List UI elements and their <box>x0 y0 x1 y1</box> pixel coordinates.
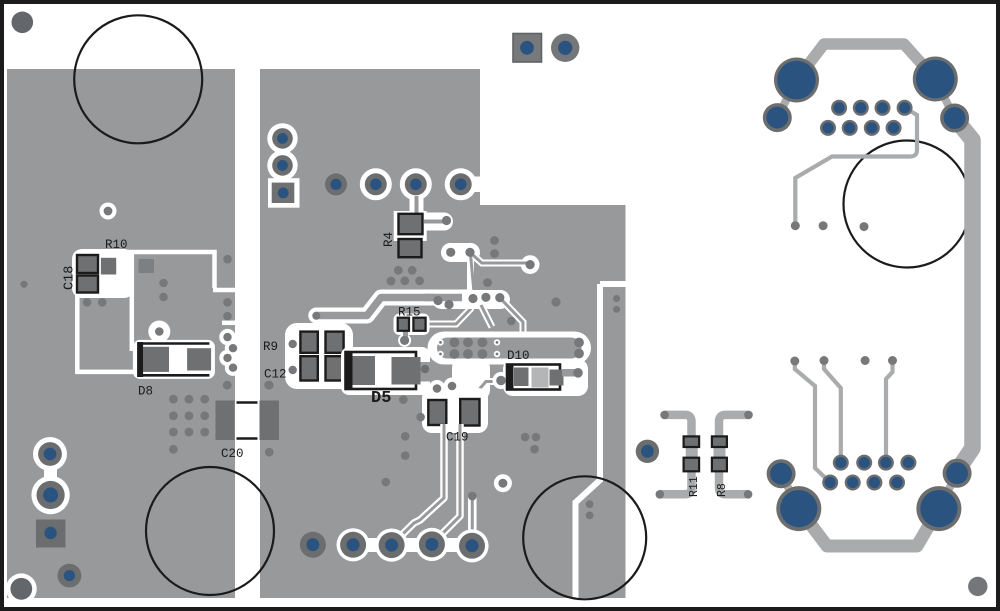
svg-text:R9: R9 <box>263 340 278 354</box>
svg-text:C18: C18 <box>63 266 78 290</box>
svg-text:R8: R8 <box>716 483 729 497</box>
svg-text:R15: R15 <box>398 306 421 320</box>
svg-text:R10: R10 <box>105 238 128 252</box>
svg-text:C12: C12 <box>264 368 287 382</box>
svg-text:R4: R4 <box>382 232 396 247</box>
svg-text:D5: D5 <box>371 389 391 408</box>
svg-text:D8: D8 <box>138 385 153 399</box>
svg-text:C20: C20 <box>221 447 244 461</box>
svg-text:C19: C19 <box>446 431 469 445</box>
svg-text:D10: D10 <box>507 349 530 363</box>
svg-text:R11: R11 <box>688 476 701 497</box>
